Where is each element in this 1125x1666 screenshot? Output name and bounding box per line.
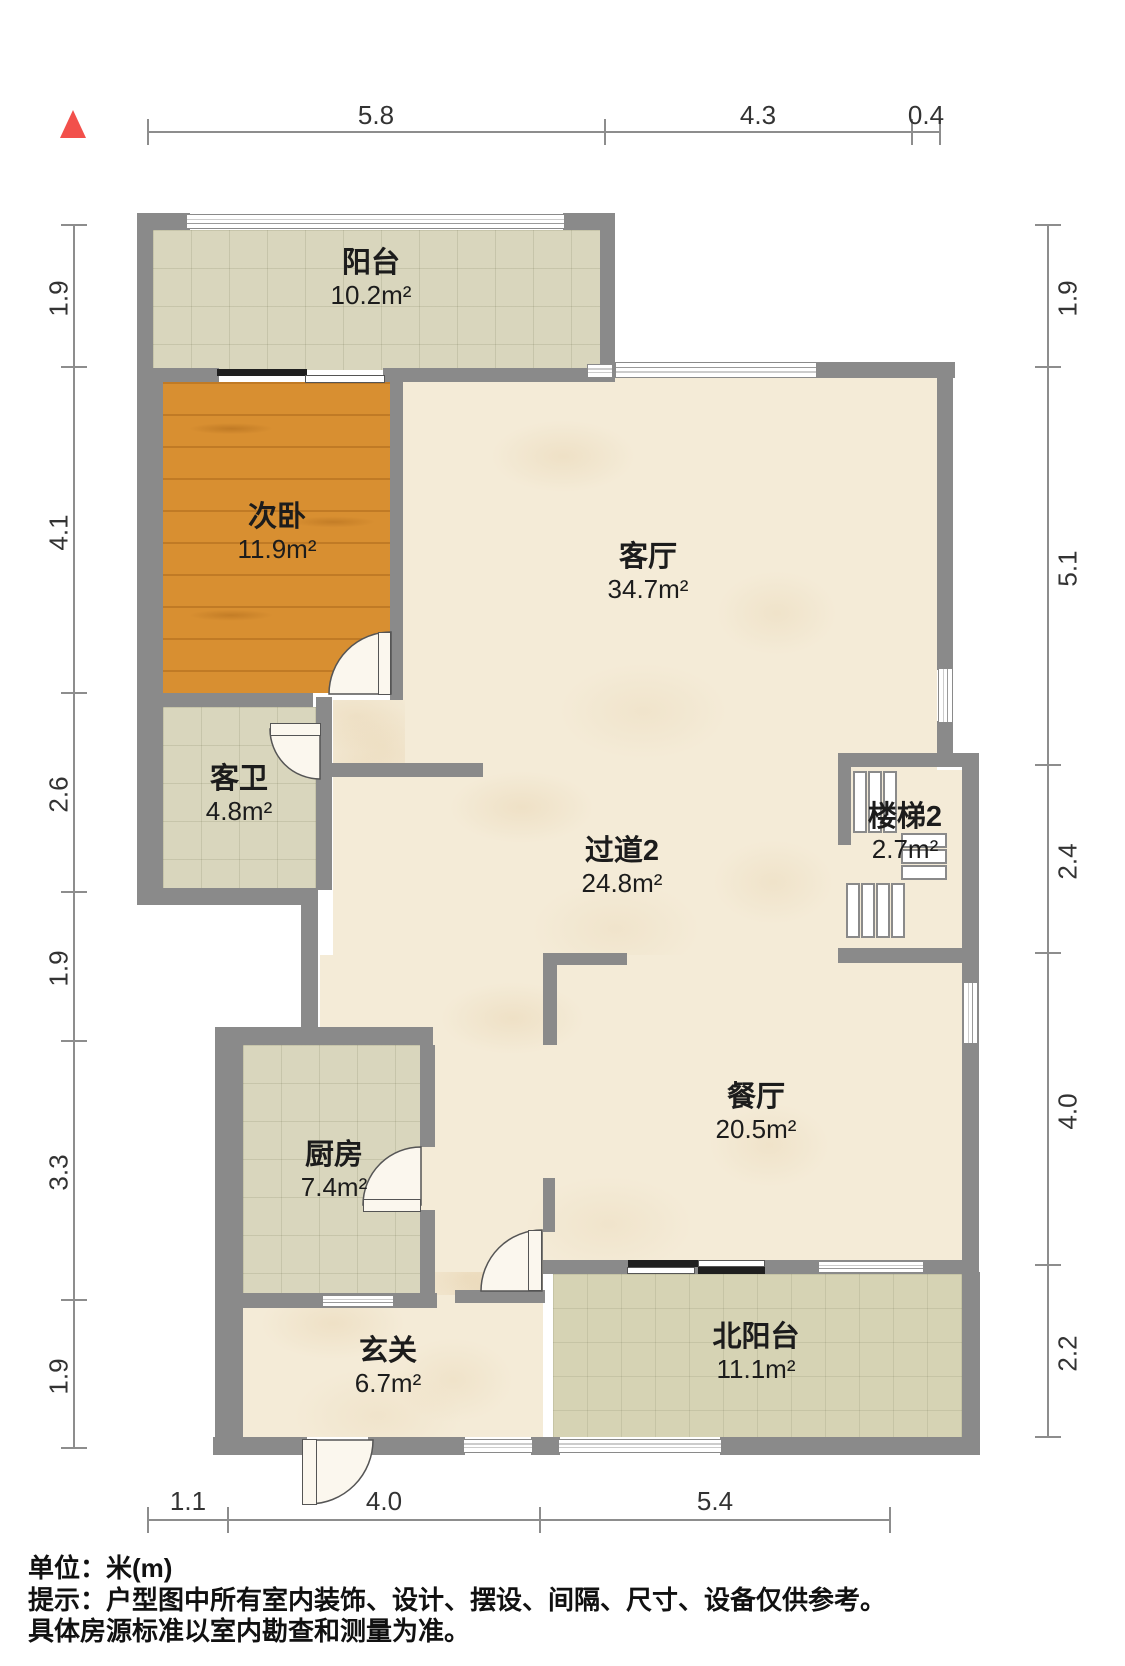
room-label-second-bedroom: 次卧11.9m² (197, 500, 357, 565)
room-label-stairs: 楼梯22.7m² (825, 800, 985, 865)
sliding-door-panel (217, 369, 307, 376)
wall-segment (455, 1290, 545, 1303)
window (818, 1261, 924, 1273)
wall-segment (962, 1272, 980, 1455)
wall-segment (531, 1437, 560, 1455)
door-leaf (378, 632, 391, 695)
dim-tick (1035, 366, 1061, 368)
dim-top-0: 5.8 (331, 100, 421, 131)
dim-right-0: 1.9 (1053, 254, 1084, 344)
dim-line-bottom (148, 1519, 890, 1521)
window (463, 1439, 533, 1453)
wall-segment (543, 1178, 555, 1232)
room-label-guest-bathroom: 客卫4.8m² (159, 762, 319, 827)
wall-segment (301, 888, 318, 1045)
dim-tick (61, 1040, 87, 1042)
dim-line-top (148, 131, 940, 133)
wall-segment (420, 1045, 435, 1147)
dim-top-1: 4.3 (713, 100, 803, 131)
window (558, 1439, 722, 1453)
sliding-door-panel (698, 1267, 765, 1274)
dim-tick (1035, 1264, 1061, 1266)
wall-segment (137, 213, 153, 373)
wall-segment (330, 763, 483, 777)
dim-tick (61, 366, 87, 368)
dim-tick (539, 1507, 541, 1533)
door-leaf (270, 723, 321, 736)
wall-segment (815, 362, 955, 378)
dim-tick (61, 224, 87, 226)
dim-left-4: 3.3 (44, 1128, 75, 1218)
wall-segment (838, 753, 962, 767)
dim-right-3: 4.0 (1053, 1067, 1084, 1157)
wall-segment (390, 370, 403, 700)
sliding-door-panel (627, 1267, 695, 1274)
wall-segment (227, 1027, 433, 1045)
window (938, 668, 953, 723)
dim-tick (61, 1447, 87, 1449)
dim-left-2: 2.6 (44, 750, 75, 840)
dim-tick (147, 119, 149, 145)
dim-bottom-1: 4.0 (339, 1486, 429, 1517)
room-label-entry-hall: 玄关6.7m² (308, 1334, 468, 1399)
dim-tick (604, 119, 606, 145)
dim-line-right (1047, 225, 1049, 1437)
dim-tick (61, 1299, 87, 1301)
wall-segment (838, 948, 962, 963)
room-label-north-balcony: 北阳台11.1m² (676, 1320, 836, 1385)
window (587, 364, 613, 378)
floor-plan: 5.8 4.3 0.4 1.1 4.0 5.4 1.9 4.1 2.6 1.9 … (0, 0, 1125, 1666)
wall-segment (368, 1437, 465, 1455)
wall-segment (720, 1437, 980, 1455)
dim-tick (1035, 952, 1061, 954)
dim-right-4: 2.2 (1053, 1309, 1084, 1399)
window (615, 362, 817, 378)
window (963, 982, 978, 1044)
dim-right-1: 5.1 (1053, 524, 1084, 614)
room-label-dining-room: 餐厅20.5m² (676, 1080, 836, 1145)
dim-tick (61, 891, 87, 893)
wall-segment (213, 1437, 307, 1455)
wall-segment (163, 693, 313, 707)
dim-left-3: 1.9 (44, 924, 75, 1014)
dim-left-1: 4.1 (44, 488, 75, 578)
wall-segment (137, 888, 317, 905)
dim-bottom-2: 5.4 (670, 1486, 760, 1517)
dim-tick (61, 692, 87, 694)
dim-tick (889, 1507, 891, 1533)
sliding-door-panel (698, 1260, 765, 1267)
window (322, 1295, 394, 1307)
window (186, 214, 565, 229)
door-leaf (528, 1230, 542, 1291)
dim-bottom-0: 1.1 (143, 1486, 233, 1517)
north-arrow-icon (60, 110, 86, 138)
wall-segment (420, 1210, 435, 1295)
footer-tip-line2: 具体房源标准以室内勘查和测量为准。 (28, 1611, 470, 1648)
dim-left-0: 1.9 (44, 254, 75, 344)
room-label-living-room: 客厅34.7m² (568, 540, 728, 605)
wall-segment (383, 368, 615, 382)
dim-right-2: 2.4 (1053, 817, 1084, 907)
wall-segment (543, 953, 557, 1045)
wall-segment (600, 213, 615, 373)
wall-segment (137, 213, 190, 230)
dim-tick (1035, 224, 1061, 226)
room-label-hallway: 过道224.8m² (542, 834, 702, 899)
room-label-balcony: 阳台10.2m² (291, 246, 451, 311)
wall-segment (215, 1027, 243, 1455)
room-label-kitchen: 厨房7.4m² (254, 1138, 414, 1203)
door-leaf (302, 1439, 317, 1505)
sliding-door-panel (305, 375, 385, 383)
wall-segment (937, 362, 953, 670)
dim-tick (1035, 1436, 1061, 1438)
dim-left-5: 1.9 (44, 1332, 75, 1422)
dim-tick (1035, 764, 1061, 766)
dim-top-2: 0.4 (881, 100, 971, 131)
sliding-door-panel (628, 1260, 698, 1267)
